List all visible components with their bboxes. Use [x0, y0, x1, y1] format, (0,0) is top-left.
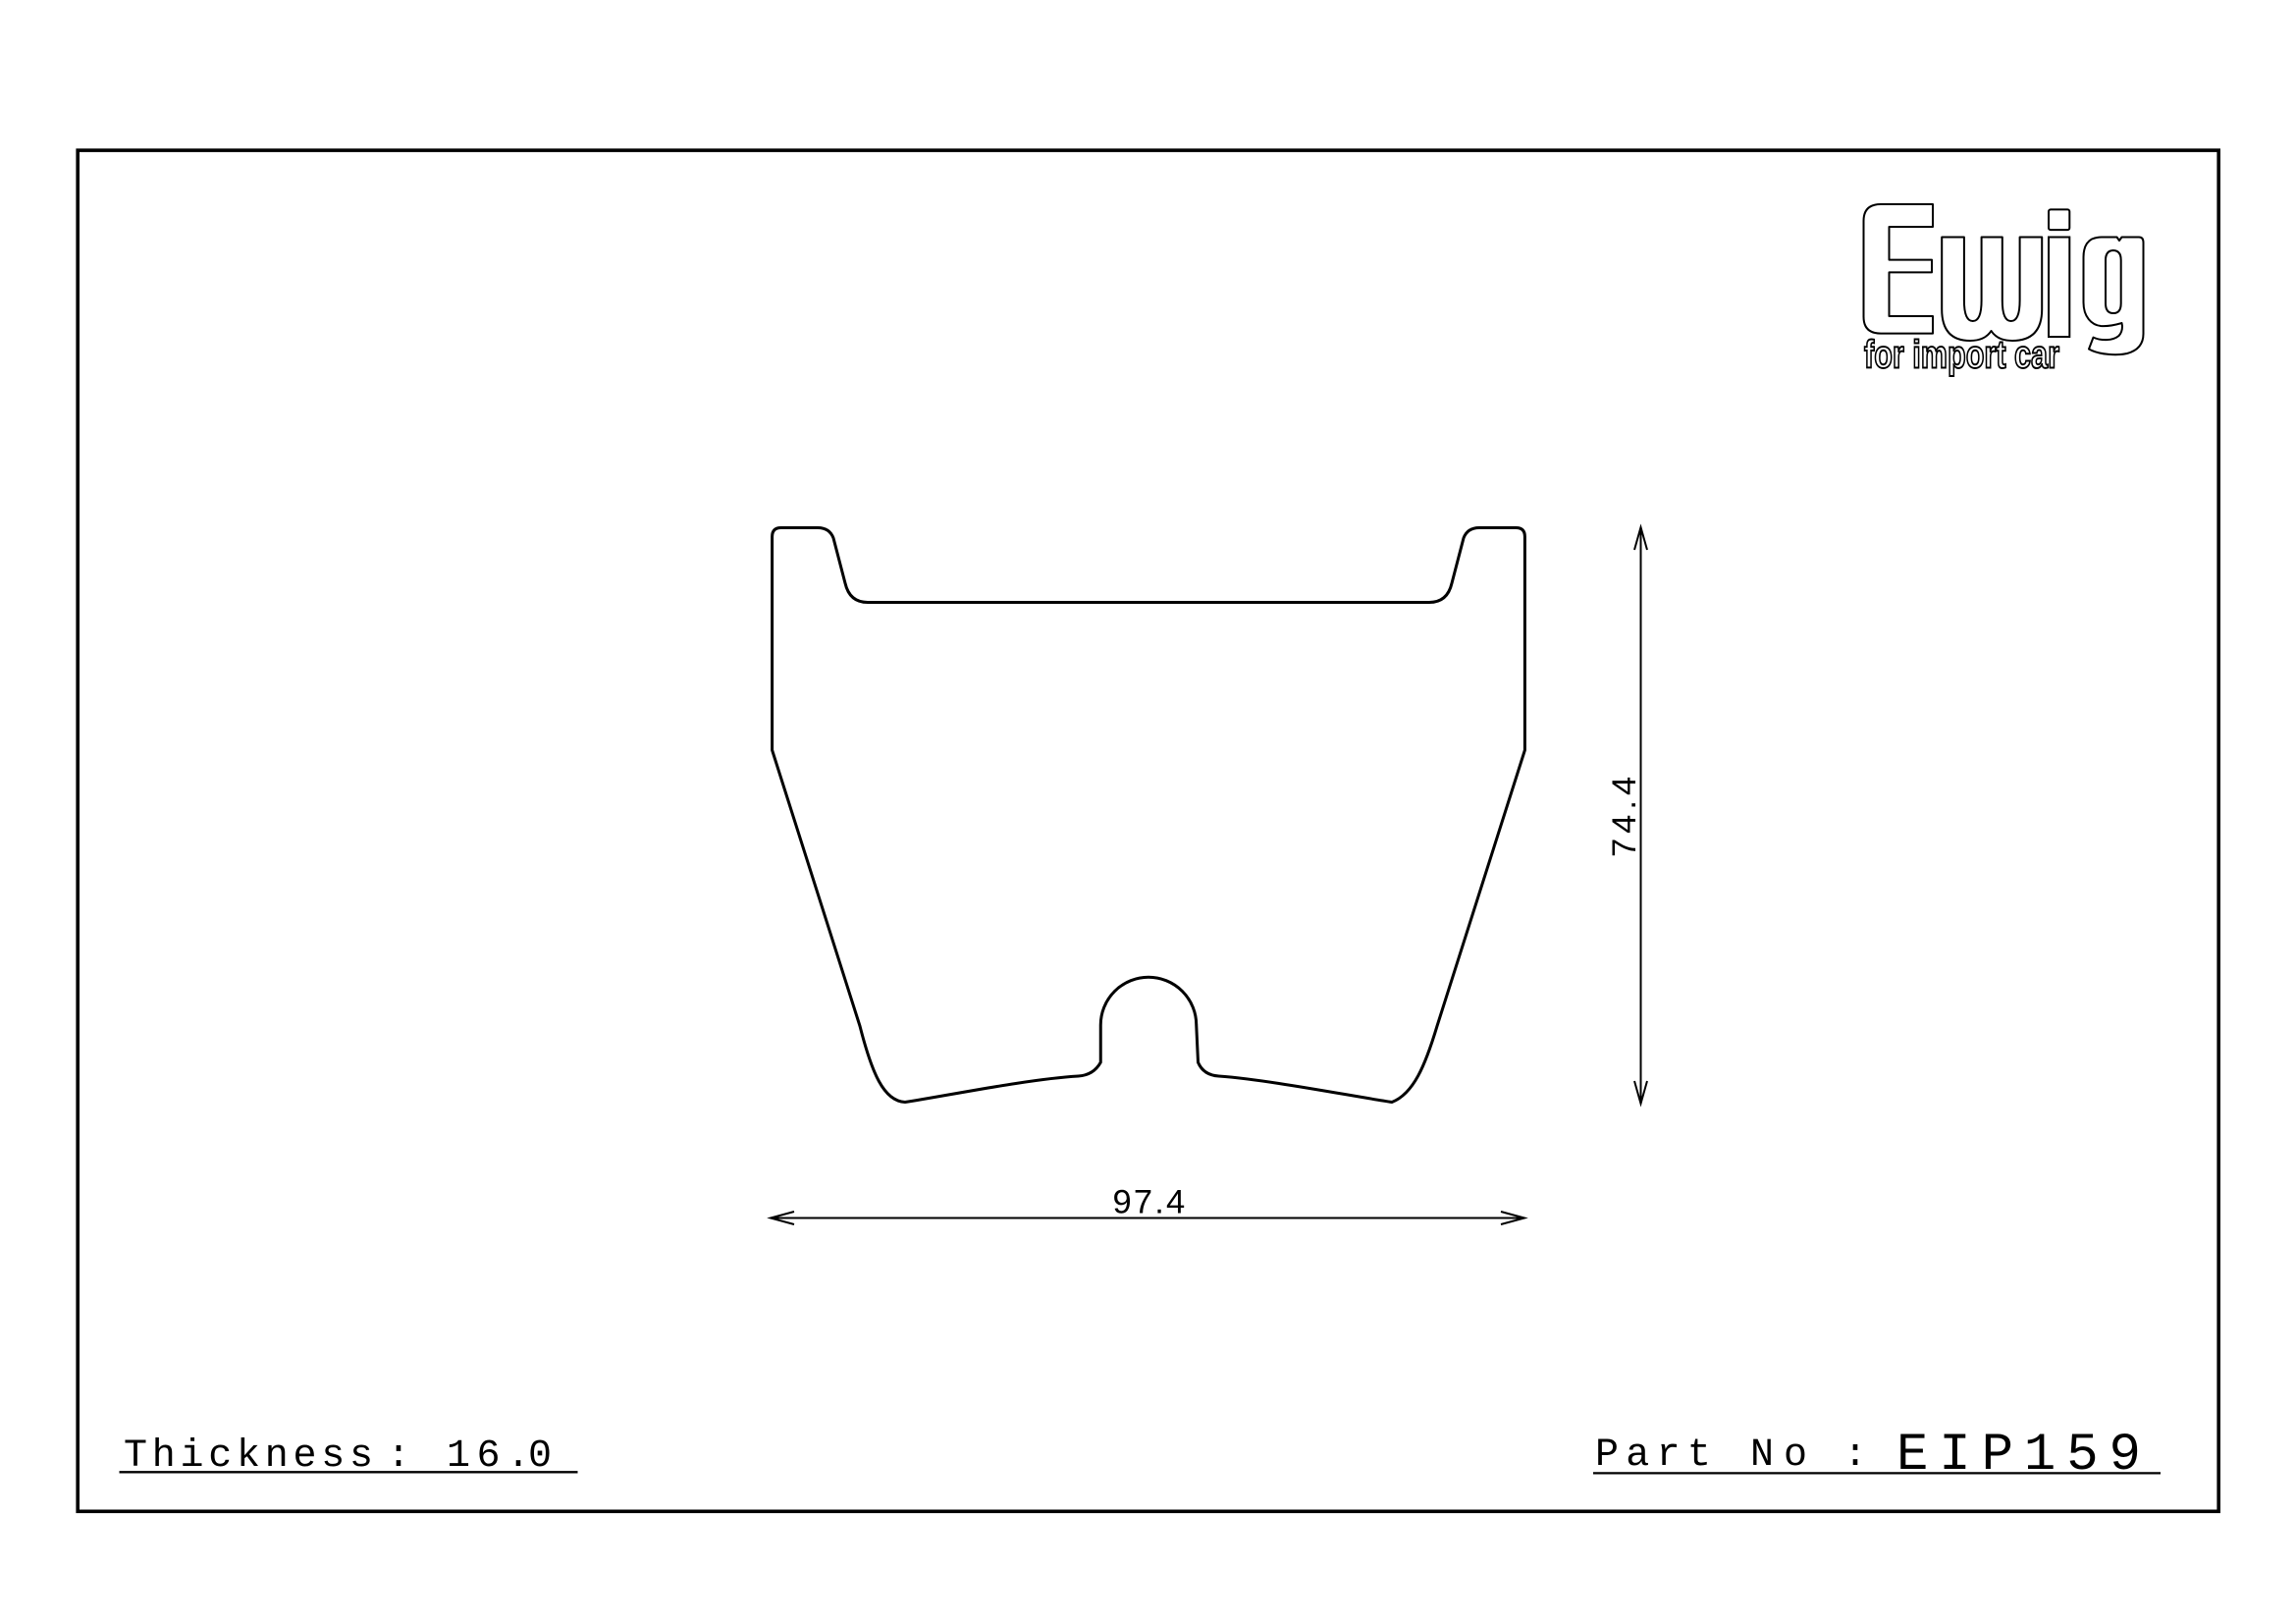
svg-text:EIP159: EIP159	[1896, 1426, 2152, 1486]
svg-text:for import car: for import car	[1864, 333, 2059, 376]
svg-text:No: No	[1750, 1434, 1817, 1478]
svg-text:97.4: 97.4	[1113, 1184, 1188, 1221]
svg-text:74.4: 74.4	[1606, 772, 1643, 857]
svg-text:Part: Part	[1595, 1434, 1718, 1478]
svg-text::: :	[1843, 1434, 1867, 1478]
